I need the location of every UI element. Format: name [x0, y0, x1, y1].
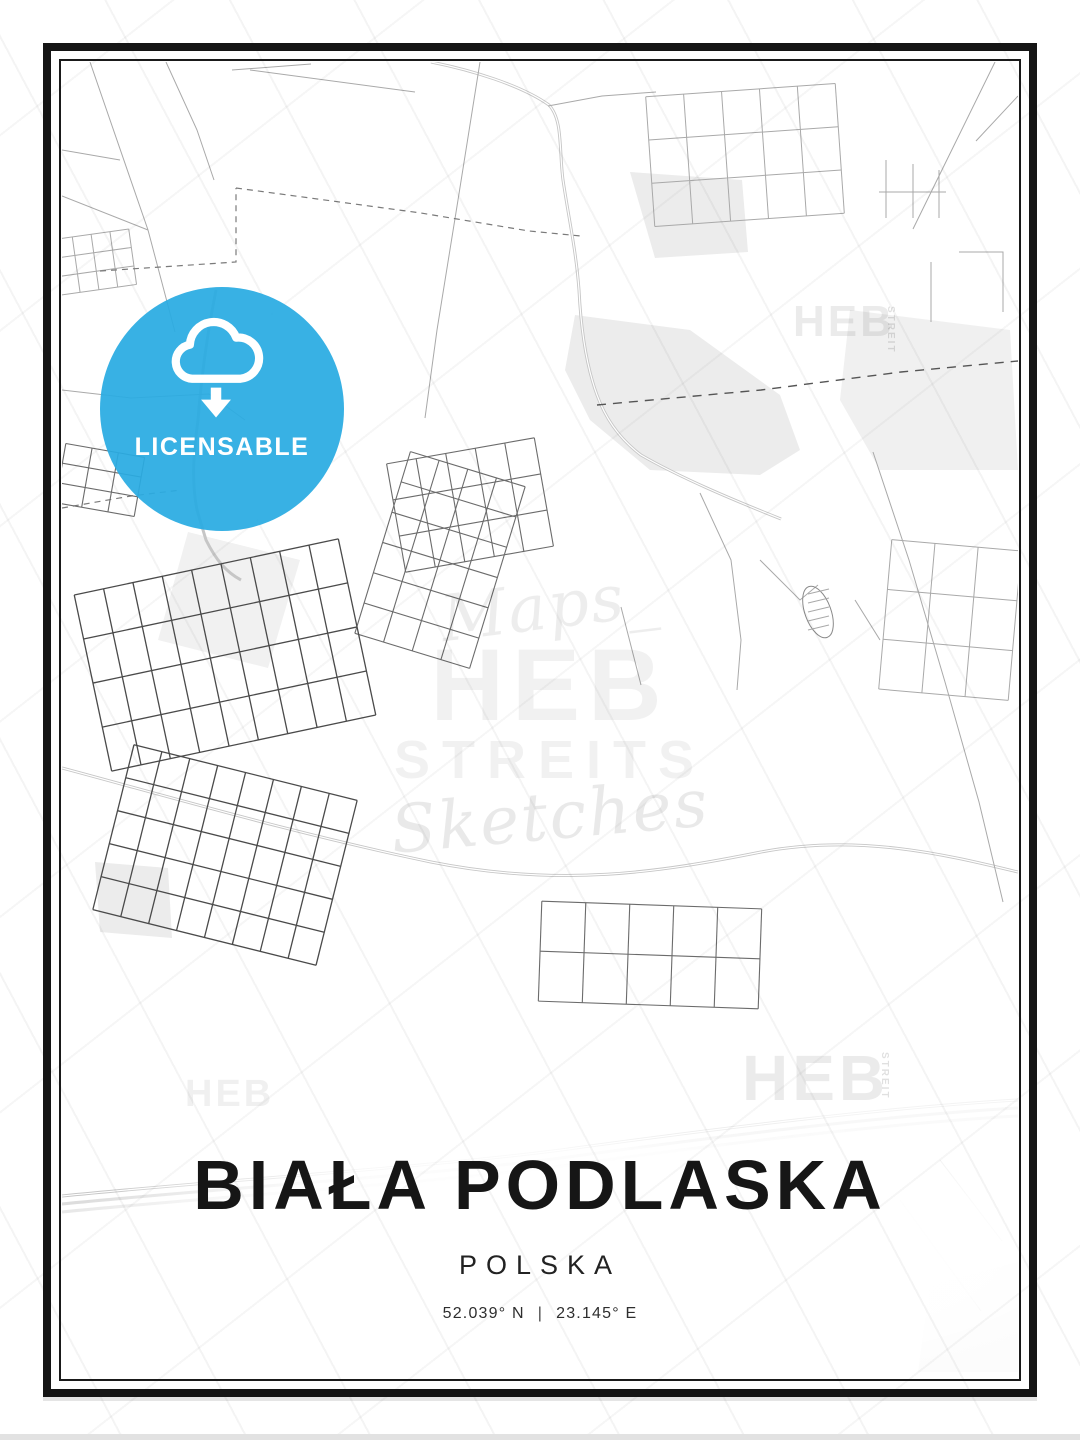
minor-rural-roads: [62, 62, 1018, 1311]
city-title: BIAŁA PODLASKA: [62, 1150, 1018, 1220]
title-block: BIAŁA PODLASKA POLSKA 52.039° N|23.145° …: [62, 1150, 1018, 1323]
longitude: 23.145° E: [556, 1305, 637, 1322]
coordinates: 52.039° N|23.145° E: [62, 1305, 1018, 1323]
cloud-download-icon: [147, 313, 297, 431]
licensable-badge: LICENSABLE: [100, 287, 344, 531]
badge-label: LICENSABLE: [135, 433, 310, 462]
page-bottom-edge: [0, 1434, 1080, 1440]
map-poster: Maps_ HEB STREITS Sketches HEBSTREIT HEB…: [0, 0, 1080, 1440]
country-subtitle: POLSKA: [62, 1250, 1018, 1281]
coordinate-separator: |: [538, 1305, 543, 1322]
latitude: 52.039° N: [443, 1305, 525, 1322]
